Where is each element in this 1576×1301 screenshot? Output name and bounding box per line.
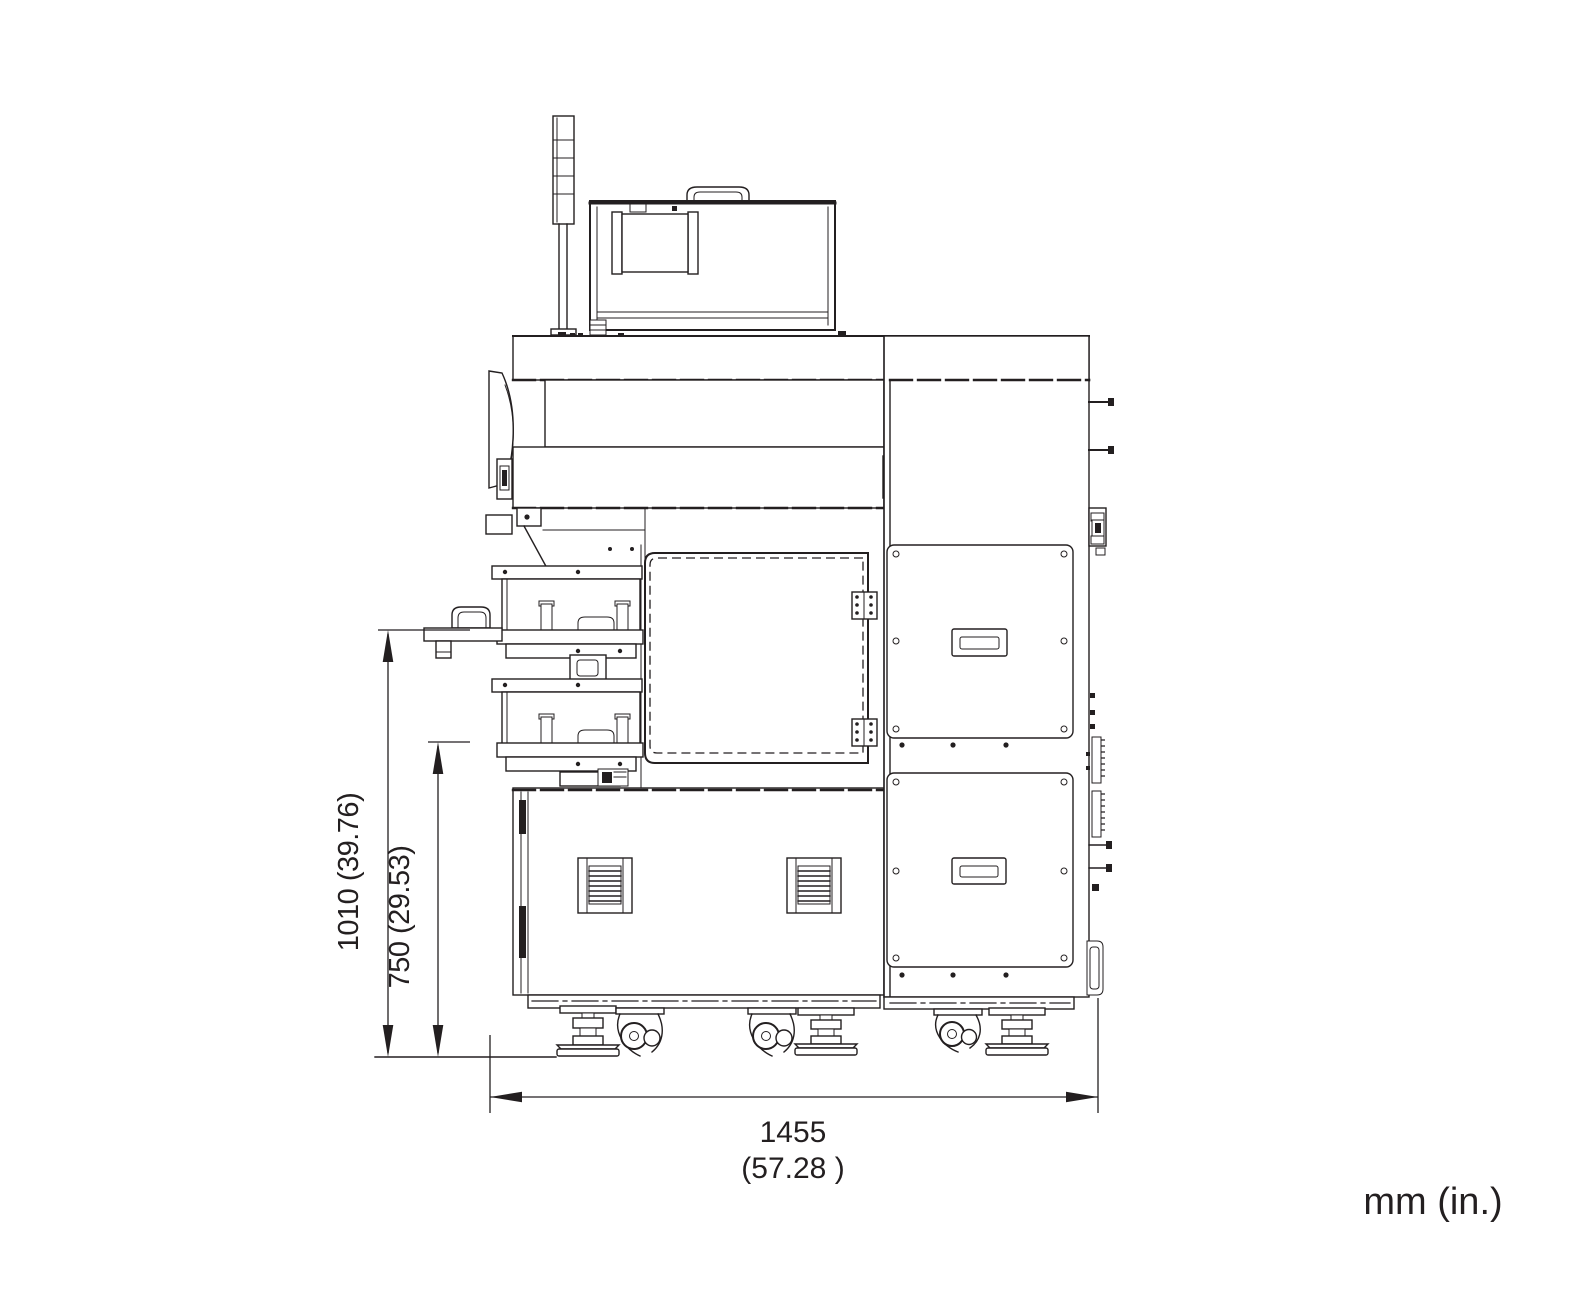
dim-label-1455-mm: 1455 — [760, 1116, 827, 1149]
door-hinge-bottom — [852, 719, 877, 746]
lower-cabinet — [513, 788, 884, 995]
tray-clamp — [578, 617, 614, 631]
right-module — [884, 336, 1114, 997]
technical-drawing-page: 1010 (39.76) 750 (29.53) 1455 (57.28 ) m… — [0, 0, 1576, 1301]
sub-band-detail — [517, 508, 645, 570]
upper-front-band — [545, 380, 884, 447]
mid-front-band — [513, 447, 900, 508]
door-hinge-top — [852, 592, 877, 619]
left-latch — [497, 459, 512, 499]
under-tray-connector — [560, 769, 628, 786]
left-arc-door — [486, 371, 513, 534]
edge-bracket — [1087, 941, 1103, 995]
tray-stage-upper — [492, 566, 643, 658]
caster-center — [748, 1008, 796, 1056]
display-unit — [558, 187, 846, 336]
side-arm-shelf — [424, 607, 502, 658]
carry-handle — [687, 187, 749, 201]
dim-label-1455-in: (57.28 ) — [741, 1152, 844, 1185]
dimension-height-750: 750 (29.53) — [384, 742, 470, 1057]
signal-tower-light — [551, 116, 576, 335]
top-knob — [630, 204, 646, 212]
leveling-foot-center — [795, 1008, 857, 1055]
right-panel-lower — [887, 773, 1073, 978]
right-edge-latch — [1089, 508, 1106, 555]
center-clamp — [570, 655, 606, 681]
tray-stage-lower — [492, 679, 643, 771]
caster-right — [934, 1009, 982, 1052]
tray-clamp — [578, 730, 614, 744]
screen-panel — [612, 212, 698, 274]
hinge-mark-top — [519, 800, 526, 834]
caster-left — [616, 1008, 664, 1056]
center-door — [641, 545, 877, 788]
leveling-foot-left — [557, 1006, 619, 1056]
arm-hook — [436, 641, 451, 658]
hinge-mark-bottom — [519, 906, 526, 958]
edge-connectors — [1086, 693, 1112, 995]
panel-handle — [952, 629, 1007, 656]
units-label: mm (in.) — [1363, 1181, 1502, 1223]
right-panel-upper — [887, 545, 1073, 748]
leveling-foot-right — [986, 1008, 1048, 1055]
dimension-height-1010: 1010 (39.76) — [333, 630, 470, 1057]
terminal-strip — [1092, 737, 1101, 783]
panel-handle — [952, 858, 1006, 884]
dim-label-750: 750 (29.53) — [384, 846, 416, 989]
dim-label-1010: 1010 (39.76) — [333, 793, 365, 951]
machine-elevation-drawing: 1010 (39.76) 750 (29.53) 1455 (57.28 ) m… — [0, 0, 1576, 1301]
vent-grille-left — [578, 858, 632, 913]
terminal-strip — [1092, 791, 1101, 837]
vent-grille-right — [787, 858, 841, 913]
